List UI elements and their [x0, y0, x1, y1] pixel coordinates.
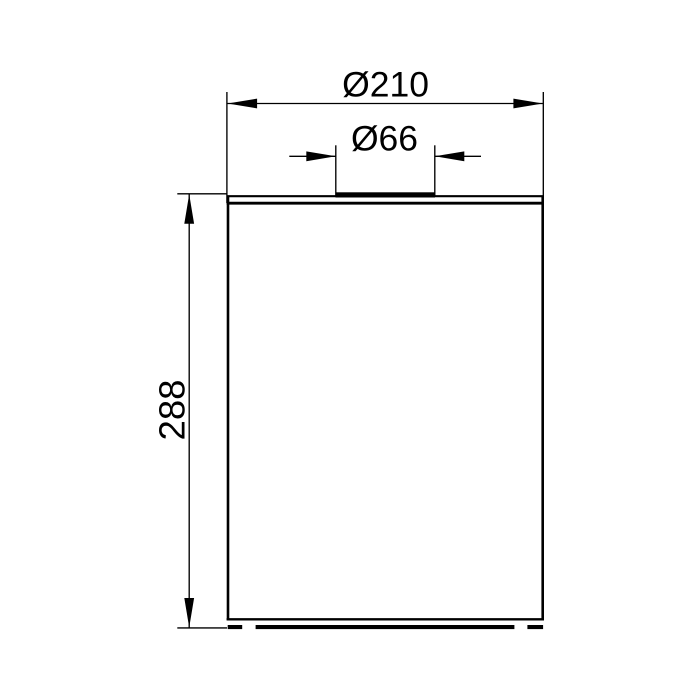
- svg-text:288: 288: [151, 380, 192, 441]
- svg-text:Ø210: Ø210: [342, 64, 429, 104]
- svg-text:Ø66: Ø66: [351, 118, 418, 158]
